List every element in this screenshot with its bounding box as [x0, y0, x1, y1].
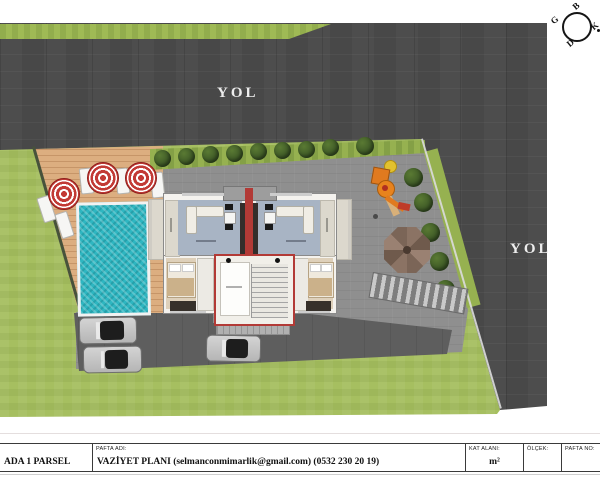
tree-icon: [414, 193, 433, 212]
parasol-icon: [48, 178, 80, 210]
terrace-right: [335, 199, 352, 260]
parcel-label: ADA 1 PARSEL: [4, 457, 70, 467]
pillow: [310, 264, 321, 272]
compass-ring: [562, 12, 592, 42]
wardrobe: [170, 301, 196, 311]
dining-chair: [265, 224, 273, 230]
tree-icon: [430, 252, 449, 271]
dining-table: [224, 212, 236, 224]
title-block-scale-cell: ÖLÇEK:: [523, 444, 561, 471]
tree-icon: [226, 145, 243, 162]
floor-area-value: m²: [466, 457, 523, 467]
title-block: ADA 1 PARSEL PAFTA ADI: VAZİYET PLANI (s…: [0, 443, 600, 472]
window: [270, 193, 312, 196]
title-block-sheet-no-cell: PAFTA NO:: [561, 444, 600, 471]
title-block-parcel-cell: ADA 1 PARSEL: [0, 444, 92, 471]
tree-icon: [356, 137, 374, 155]
car: [79, 316, 137, 344]
pillow: [169, 264, 181, 272]
pillow: [321, 264, 332, 272]
frame-line: [0, 433, 600, 434]
column: [275, 258, 280, 263]
dining-table: [264, 212, 276, 224]
gazebo-roof-center: [403, 246, 411, 254]
tree-icon: [274, 142, 291, 159]
sheet-name-header: PAFTA ADI:: [96, 446, 127, 452]
frame-line: [0, 474, 600, 475]
bed-blanket: [167, 278, 194, 296]
dining-chair: [225, 204, 233, 210]
wardrobe: [306, 301, 331, 311]
pillow: [182, 264, 194, 272]
tree-icon: [250, 143, 267, 160]
tree-icon: [154, 150, 171, 167]
staircase: [251, 264, 288, 318]
compass-west: B: [570, 0, 581, 12]
title-block-floor-area-cell: KAT ALANI: m²: [465, 444, 523, 471]
sheet-name-value: VAZİYET PLANI (selmanconmimarlik@gmail.c…: [97, 457, 379, 467]
room-label-marks: [196, 240, 216, 242]
entry-hall: [220, 262, 250, 316]
dining-chair: [265, 204, 273, 210]
dining-chair: [225, 224, 233, 230]
room-label-marks: [326, 218, 328, 232]
car: [206, 335, 261, 363]
scale-header: ÖLÇEK:: [527, 446, 548, 452]
room-label-marks: [226, 286, 242, 288]
tree-icon: [178, 148, 195, 165]
compass-south: G: [549, 14, 561, 26]
parasol-icon: [125, 162, 157, 194]
road-label-top: YOL: [217, 85, 259, 102]
room-label-marks: [286, 240, 306, 242]
playground-equipment: [382, 185, 388, 191]
party-wall-red: [245, 188, 253, 264]
bathroom-left: [197, 258, 214, 311]
bed-blanket: [308, 278, 332, 296]
title-block-sheet-name-cell: PAFTA ADI: VAZİYET PLANI (selmanconmimar…: [92, 444, 465, 471]
tree-icon: [322, 139, 339, 156]
tree-icon: [298, 141, 315, 158]
playground-equipment: [373, 214, 378, 219]
car: [83, 345, 142, 373]
tree-icon: [404, 168, 423, 187]
sheet-no-header: PAFTA NO:: [565, 446, 595, 452]
road-label-right: YOL: [510, 241, 552, 258]
floor-area-header: KAT ALANI:: [469, 446, 500, 452]
column: [226, 258, 231, 263]
swimming-pool: [76, 201, 151, 316]
parasol-icon: [87, 162, 119, 194]
room-label-marks: [170, 218, 172, 232]
compass-icon: B G K D: [551, 3, 599, 51]
window: [182, 193, 224, 196]
sofa: [186, 206, 197, 234]
tree-icon: [202, 146, 219, 163]
sofa: [303, 206, 314, 234]
